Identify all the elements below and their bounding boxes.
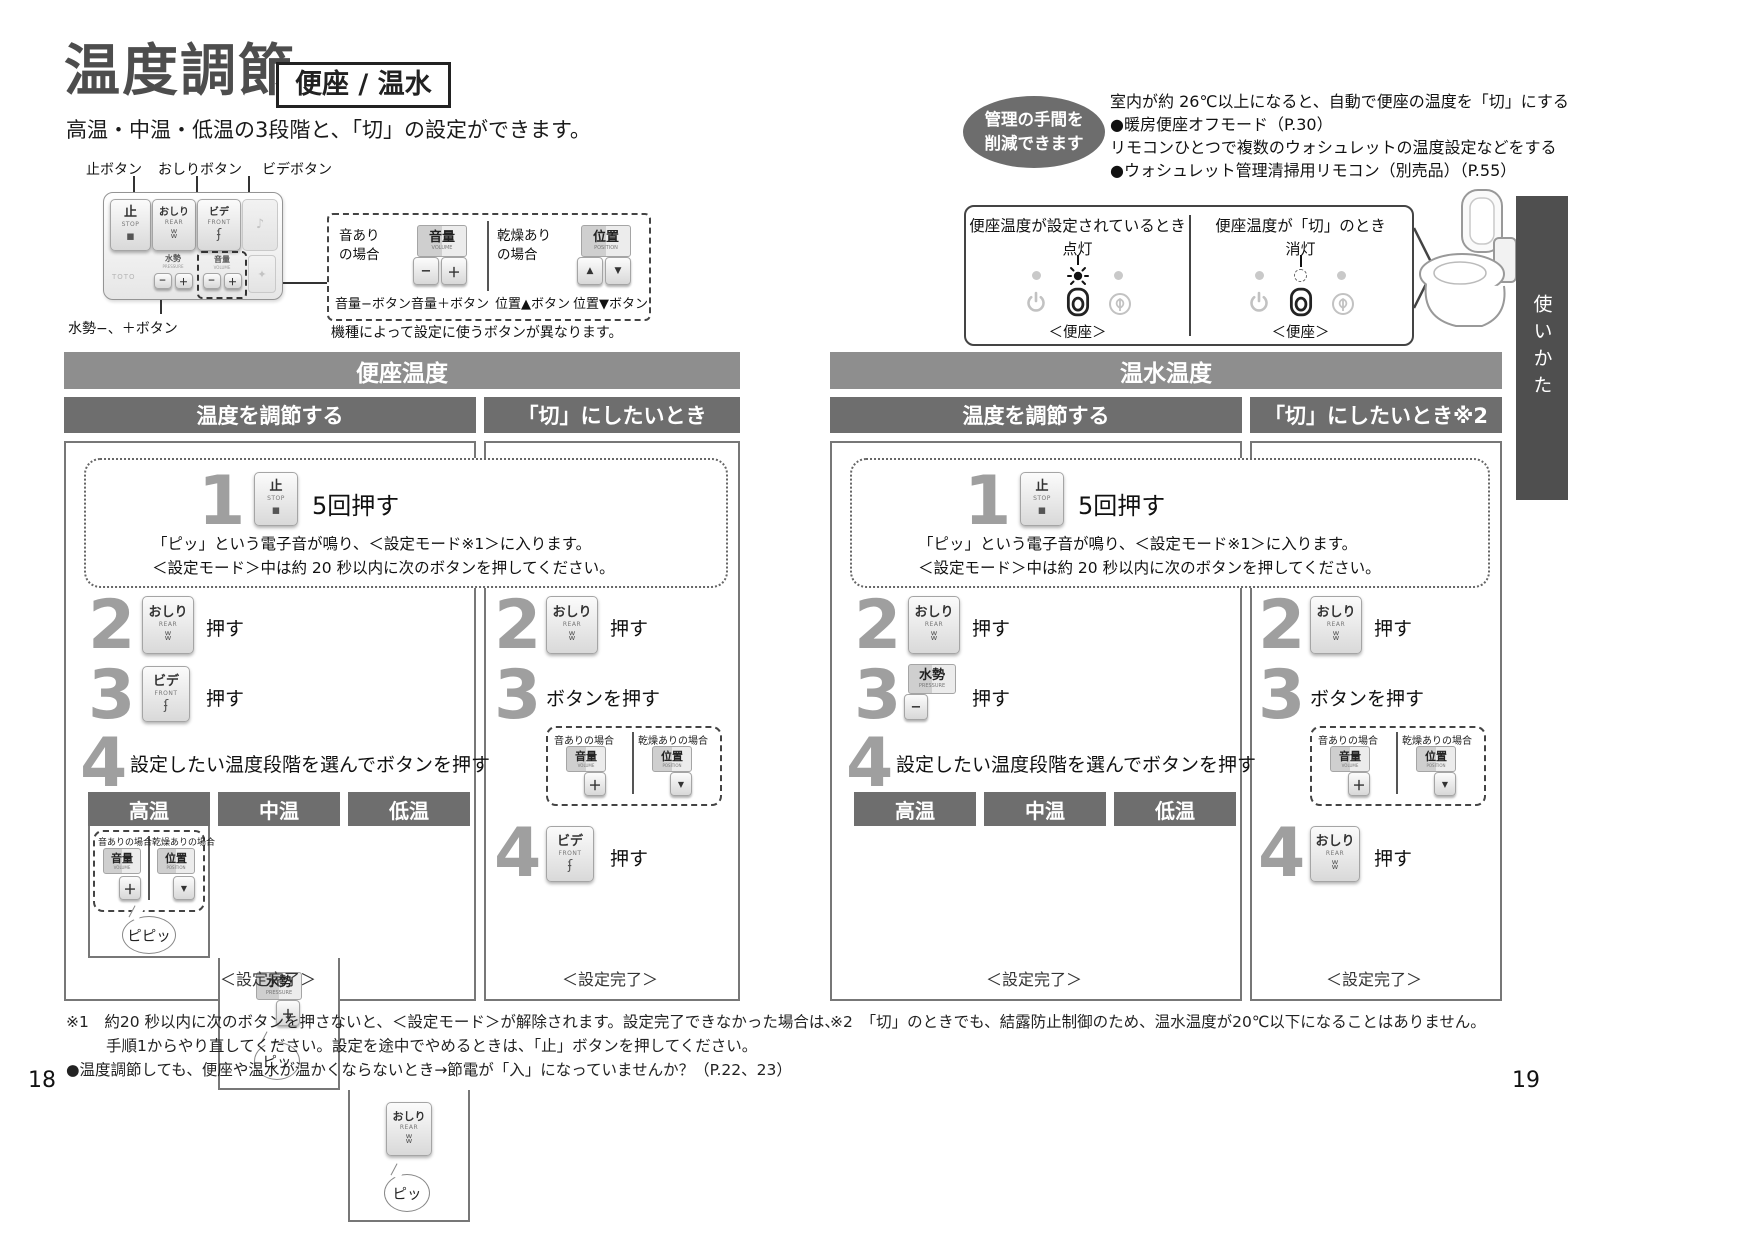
bidet-spray-icon: ʄ	[217, 227, 221, 243]
pressure-button: 水勢 PRESSURE	[908, 664, 956, 694]
callout-line	[248, 176, 250, 192]
setting-complete-label: ＜設定完了＞	[830, 966, 1238, 990]
pressure-minus-key: −	[154, 273, 172, 289]
temp-low-header: 低温	[348, 792, 470, 826]
power-icon	[1024, 291, 1048, 317]
footnote-1: ※1 約20 秒以内に次のボタンを押さないと、＜設定モード＞が解除されます。設定…	[66, 1010, 840, 1082]
page-title: 温度調節	[64, 44, 296, 100]
water-off-variant-box: 音ありの場合 音量 VOLUME ＋ 乾燥ありの場合 位置 POSITION ▼	[1310, 726, 1486, 806]
position-down-key: ▼	[173, 876, 195, 900]
temp-high-header: 高温	[88, 792, 210, 826]
remote-muted-button: ♪	[242, 199, 278, 251]
step-number: 3	[1258, 662, 1305, 730]
rear-button: おしり REAR ʬ	[1310, 596, 1362, 654]
setting-complete-label: ＜設定完了＞	[1250, 966, 1498, 990]
step-number: 4	[1258, 820, 1305, 888]
temp-low-cell: おしり REAR ʬ ピッ	[348, 1090, 470, 1222]
step-description: 「ピッ」という電子音が鳴り、＜設定モード※1＞に入ります。 ＜設定モード＞中は約…	[152, 532, 615, 580]
step-number: 2	[88, 592, 135, 660]
rear-spray-icon: ʬ	[569, 629, 576, 645]
rear-button: おしり REAR ʬ	[142, 596, 194, 654]
pressure-plus-key: ＋	[175, 273, 193, 289]
tip-badge: 管理の手間を 削減できます	[963, 96, 1105, 168]
volume-plus-key: ＋	[441, 257, 467, 285]
volume-plus-key: ＋	[224, 273, 242, 289]
manual-page: 温度調節 便座 / 温水 高温・中温・低温の3段階と、「切」の設定ができます。 …	[0, 0, 1754, 1240]
page-number-left: 18	[28, 1068, 56, 1093]
position-down-key: ▼	[1434, 772, 1456, 796]
bidet-button: ビデ FRONT ʄ	[142, 666, 190, 722]
power-icon	[1247, 291, 1271, 317]
led-on-title: 便座温度が設定されているとき	[966, 214, 1189, 236]
volume-button: 音量 VOLUME	[417, 225, 467, 257]
divider	[632, 732, 634, 794]
led-indicator-panel: 便座温度が設定されているとき 点灯	[964, 205, 1414, 346]
volume-minus-key: −	[413, 257, 439, 285]
step-number: 3	[494, 662, 541, 730]
rear-button: おしり REAR ʬ	[908, 596, 960, 654]
title-badge: 便座 / 温水	[276, 62, 451, 108]
temp-high-cell: 音ありの場合 音量 VOLUME ＋ 乾燥ありの場合 位置 POSITION ▼…	[88, 826, 210, 958]
step-number: 2	[854, 592, 901, 660]
volume-minus-label: 音量−ボタン	[335, 293, 411, 312]
brand-logo: TOTO	[112, 273, 136, 281]
step-action: 押す	[972, 684, 1010, 711]
step-number: 4	[80, 730, 127, 798]
bidet-button: ビデ FRONT ʄ	[546, 826, 594, 882]
callout-pressure-buttons: 水勢−、＋ボタン	[68, 318, 178, 338]
beep-bubble: ピピッ	[122, 916, 176, 954]
stop-button: 止 STOP ▪	[254, 472, 298, 526]
water-section-header: 温水温度	[830, 352, 1502, 389]
dry-case-title: 乾燥あり の場合	[497, 227, 551, 265]
led-dot	[1032, 271, 1041, 280]
volume-plus-label: 音量＋ボタン	[411, 293, 489, 312]
toilet-illustration	[1396, 186, 1528, 338]
position-button: 位置 POSITION	[157, 848, 195, 874]
temp-low-header: 低温	[1114, 792, 1236, 826]
seat-adjust-column-header: 温度を調節する	[64, 397, 476, 433]
temp-mid-header: 中温	[984, 792, 1106, 826]
rear-spray-icon: ʬ	[171, 227, 178, 243]
step-number: 3	[854, 662, 901, 730]
tip-line: リモコンひとつで複数のウォシュレットの温度設定などをする	[1110, 136, 1569, 159]
seat-icon	[1288, 287, 1314, 317]
position-down-label: 位置▼ボタン	[573, 293, 648, 312]
eco-leaf-icon	[1108, 291, 1132, 317]
stop-square-icon: ▪	[272, 503, 281, 519]
tip-line: ●暖房便座オフモード（P.30）	[1110, 113, 1569, 136]
led-unlit-icon	[1294, 269, 1307, 282]
step-number: 2	[494, 592, 541, 660]
volume-button: 音量 VOLUME	[1330, 746, 1370, 772]
position-down-key: ▼	[670, 772, 692, 796]
remote-muted-key: ✦	[248, 255, 276, 293]
remote-rear-button: おしり REAR ʬ	[152, 199, 196, 251]
temp-high-header: 高温	[854, 792, 976, 826]
step-action: 押す	[610, 844, 648, 871]
position-button: 位置 POSITION	[652, 746, 692, 772]
volume-minus-key: −	[203, 273, 221, 289]
seat-icon	[1065, 287, 1091, 317]
tip-line: 室内が約 26℃以上になると、自動で便座の温度を「切」にする	[1110, 90, 1569, 113]
callout-line	[160, 300, 162, 314]
sound-case-title: 音あり の場合	[339, 227, 380, 265]
step-action: ボタンを押す	[1310, 684, 1424, 711]
water-step1-box: 1 止 STOP ▪ 5回押す 「ピッ」という電子音が鳴り、＜設定モード※1＞に…	[850, 458, 1490, 588]
rear-button: おしり REAR ʬ	[386, 1102, 432, 1156]
position-down-key: ▼	[605, 257, 631, 285]
beep-bubble: ピッ	[384, 1174, 430, 1212]
step-action: ボタンを押す	[546, 684, 660, 711]
setting-complete-label: ＜設定完了＞	[64, 966, 472, 990]
callout-bidet-button: ビデボタン	[262, 159, 332, 179]
seat-off-variant-box: 音ありの場合 音量 VOLUME ＋ 乾燥ありの場合 位置 POSITION ▼	[546, 726, 722, 806]
volume-plus-key: ＋	[119, 876, 141, 900]
step-description: 「ピッ」という電子音が鳴り、＜設定モード※1＞に入ります。 ＜設定モード＞中は約…	[918, 532, 1381, 580]
step-action: 設定したい温度段階を選んでボタンを押す	[130, 750, 490, 777]
divider	[487, 221, 489, 291]
page-number-right: 19	[1512, 1068, 1540, 1093]
water-off-column-header: 「切」にしたいとき※2	[1250, 397, 1502, 433]
stop-square-icon: ▪	[126, 229, 135, 245]
step-action: 押す	[1374, 844, 1412, 871]
seat-indicator-label: ＜便座＞	[1189, 321, 1412, 342]
step-action: 押す	[1374, 614, 1412, 641]
sparkle-icon: ✦	[257, 268, 266, 281]
rear-button: おしり REAR ʬ	[1310, 826, 1360, 882]
position-up-label: 位置▲ボタン	[495, 293, 570, 312]
pressure-minus-key: −	[904, 694, 928, 720]
side-tab-usage: 使いかた	[1516, 196, 1568, 500]
variant-note: 機種によって設定に使うボタンが異なります。	[331, 322, 622, 342]
water-adjust-column-header: 温度を調節する	[830, 397, 1242, 433]
rear-button: おしり REAR ʬ	[546, 596, 598, 654]
step-action: 押す	[972, 614, 1010, 641]
remote-stop-button: 止 STOP ▪	[110, 199, 151, 251]
callout-line	[196, 176, 198, 192]
bidet-spray-icon: ʄ	[568, 858, 572, 874]
step-number: 1	[198, 468, 245, 536]
rear-spray-icon: ʬ	[1333, 629, 1340, 645]
stop-square-icon: ▪	[1038, 503, 1047, 519]
led-off-panel: 便座温度が「切」のとき 消灯 ＜便座＞	[1189, 207, 1412, 344]
remote-bidet-button: ビデ FRONT ʄ	[197, 199, 241, 251]
setting-complete-label: ＜設定完了＞	[484, 966, 736, 990]
volume-button: 音量 VOLUME	[566, 746, 606, 772]
led-lit-icon	[1063, 259, 1093, 289]
temp-high-variant-box: 音ありの場合 音量 VOLUME ＋ 乾燥ありの場合 位置 POSITION ▼	[93, 830, 205, 912]
step-action: 5回押す	[1078, 486, 1165, 521]
seat-section-header: 便座温度	[64, 352, 740, 389]
position-up-key: ▲	[577, 257, 603, 285]
volume-plus-key: ＋	[1348, 772, 1370, 796]
led-dot	[1255, 271, 1264, 280]
step-action: 押す	[206, 684, 244, 711]
led-on-panel: 便座温度が設定されているとき 点灯	[966, 207, 1189, 344]
step-action: 押す	[610, 614, 648, 641]
seat-off-column-header: 「切」にしたいとき	[484, 397, 740, 433]
variant-box: 音あり の場合 音量 VOLUME − ＋ 音量−ボタン 音量＋ボタン 乾燥あり…	[327, 213, 651, 321]
pointer-line	[1300, 255, 1302, 267]
remote-volume-group: 音量 VOLUME − ＋	[197, 251, 247, 299]
eco-leaf-icon	[1331, 291, 1355, 317]
step-action: 押す	[206, 614, 244, 641]
remote-pressure-group: 水勢 PRESSURE − ＋	[152, 253, 194, 293]
led-off-title: 便座温度が「切」のとき	[1189, 214, 1412, 236]
bidet-spray-icon: ʄ	[164, 698, 168, 714]
page-subtitle: 高温・中温・低温の3段階と、「切」の設定ができます。	[66, 114, 591, 144]
rear-spray-icon: ʬ	[165, 629, 172, 645]
connector-line	[283, 282, 327, 284]
music-note-icon: ♪	[256, 217, 264, 233]
step-number: 3	[88, 662, 135, 730]
position-button: 位置 POSITION	[1416, 746, 1456, 772]
volume-button: 音量 VOLUME	[103, 848, 141, 874]
callout-line	[133, 176, 135, 192]
position-button: 位置 POSITION	[581, 225, 631, 257]
volume-plus-key: ＋	[584, 772, 606, 796]
step-number: 2	[1258, 592, 1305, 660]
temp-mid-header: 中温	[218, 792, 340, 826]
callout-rear-button: おしりボタン	[158, 159, 242, 179]
step-number: 1	[964, 468, 1011, 536]
led-dot	[1114, 271, 1123, 280]
seat-indicator-label: ＜便座＞	[966, 321, 1189, 342]
footnote-2: ※2 「切」のときでも、結露防止制御のため、温水温度が20℃以下になることはあり…	[830, 1010, 1486, 1034]
step-action: 5回押す	[312, 486, 399, 521]
stop-button: 止 STOP ▪	[1020, 472, 1064, 526]
rear-spray-icon: ʬ	[931, 629, 938, 645]
remote-control-illustration: 止 STOP ▪ おしり REAR ʬ ビデ FRONT ʄ ♪ TOTO 水勢…	[103, 192, 283, 300]
tip-line: ●ウォシュレット管理清掃用リモコン（別売品）（P.55）	[1110, 159, 1569, 182]
step-number: 4	[846, 730, 893, 798]
rear-spray-icon: ʬ	[406, 1132, 413, 1148]
tip-text: 室内が約 26℃以上になると、自動で便座の温度を「切」にする ●暖房便座オフモー…	[1110, 90, 1569, 182]
divider	[1396, 732, 1398, 794]
rear-spray-icon: ʬ	[1332, 858, 1339, 874]
led-dot	[1337, 271, 1346, 280]
step-number: 4	[494, 820, 541, 888]
seat-step1-box: 1 止 STOP ▪ 5回押す 「ピッ」という電子音が鳴り、＜設定モード※1＞に…	[84, 458, 728, 588]
step-action: 設定したい温度段階を選んでボタンを押す	[896, 750, 1256, 777]
